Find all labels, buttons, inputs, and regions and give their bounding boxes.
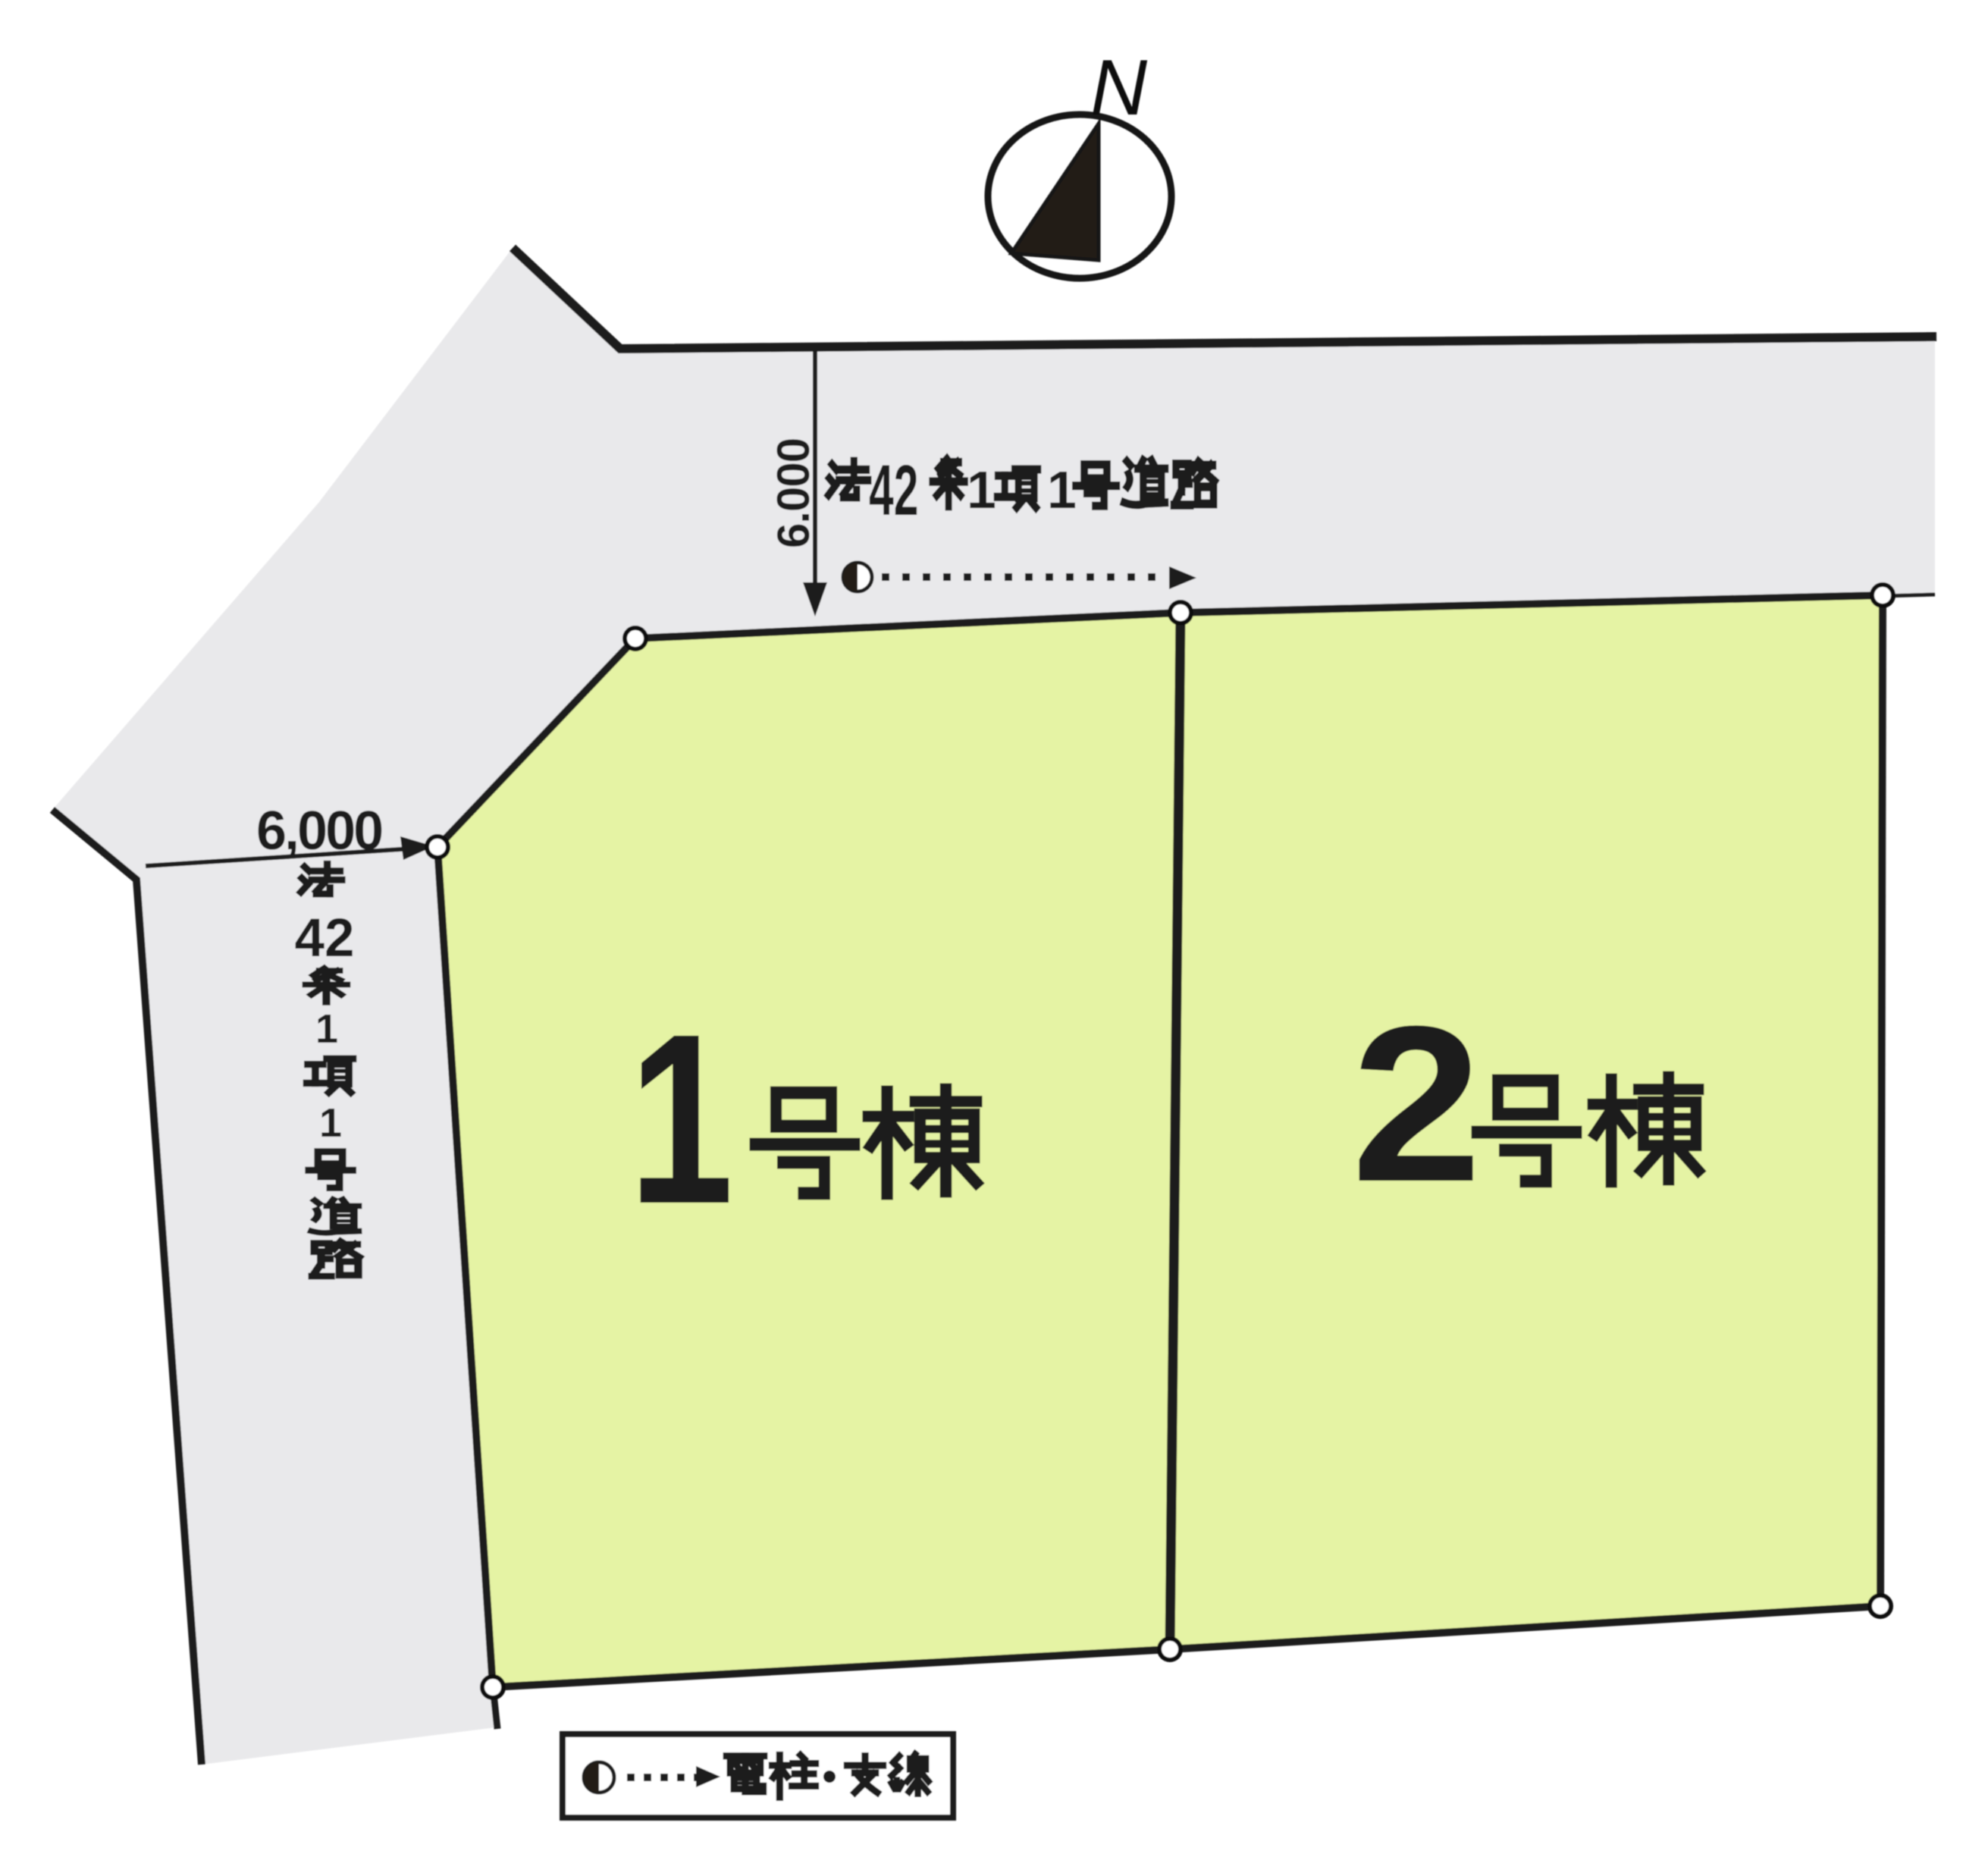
svg-text:6,000: 6,000: [256, 801, 382, 861]
svg-text:42: 42: [869, 449, 918, 530]
svg-text:1: 1: [629, 983, 734, 1254]
svg-text:2: 2: [1351, 980, 1482, 1228]
svg-text:N: N: [1090, 44, 1148, 132]
svg-text:6.000: 6.000: [768, 438, 819, 548]
svg-text:1: 1: [315, 1006, 338, 1052]
svg-text:1: 1: [967, 460, 996, 519]
svg-text:1: 1: [319, 1100, 342, 1146]
svg-text:42: 42: [295, 908, 355, 968]
